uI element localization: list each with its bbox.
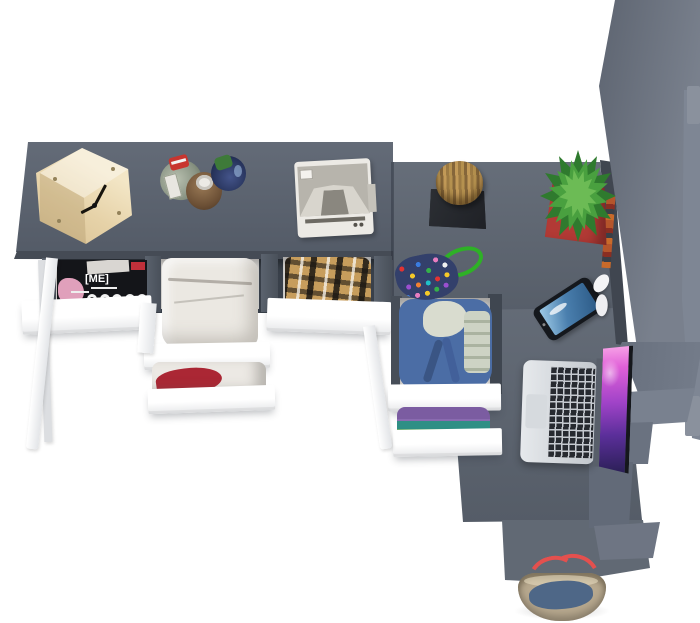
laptop-screen — [599, 345, 633, 474]
sewing-spool — [299, 169, 313, 180]
trousers-fold — [174, 294, 244, 303]
wardrobe-shelf-tab-top — [687, 86, 700, 124]
laptop-keyboard — [548, 367, 595, 458]
sewing-machine — [294, 158, 374, 238]
hoodie-lining — [423, 301, 467, 337]
laptop-trackpad — [525, 394, 547, 429]
magazine-text-line-2 — [71, 291, 89, 293]
hoodie-strap-2 — [442, 337, 461, 384]
sewing-side-tab — [367, 184, 376, 212]
perfume-bottle-blue — [211, 156, 246, 191]
cap-stripe — [171, 158, 186, 165]
hoodie-strap — [422, 339, 443, 383]
denim-hoodie — [399, 299, 492, 389]
laptop — [514, 338, 655, 475]
desk-leg-left — [26, 257, 58, 449]
chest-drawer-front-lower — [393, 428, 502, 457]
magazine-red-label — [131, 262, 145, 270]
bottle-label — [163, 173, 182, 200]
trousers-waistband — [168, 278, 252, 285]
magazine-title: [ME] — [85, 273, 109, 285]
magazine-text-line — [91, 287, 117, 289]
earphone-bud-2 — [596, 294, 608, 316]
wooden-cube-clock — [36, 148, 132, 244]
furniture-scene: [ME] — [0, 0, 700, 623]
wardrobe-step-5 — [593, 522, 661, 562]
clock-center-pin — [92, 203, 97, 208]
folded-shirts-stack — [464, 311, 490, 373]
white-trousers — [162, 258, 258, 348]
bottle-glint — [234, 165, 242, 177]
phone-button — [542, 323, 546, 327]
drawer-front-middle-lower — [148, 385, 276, 414]
